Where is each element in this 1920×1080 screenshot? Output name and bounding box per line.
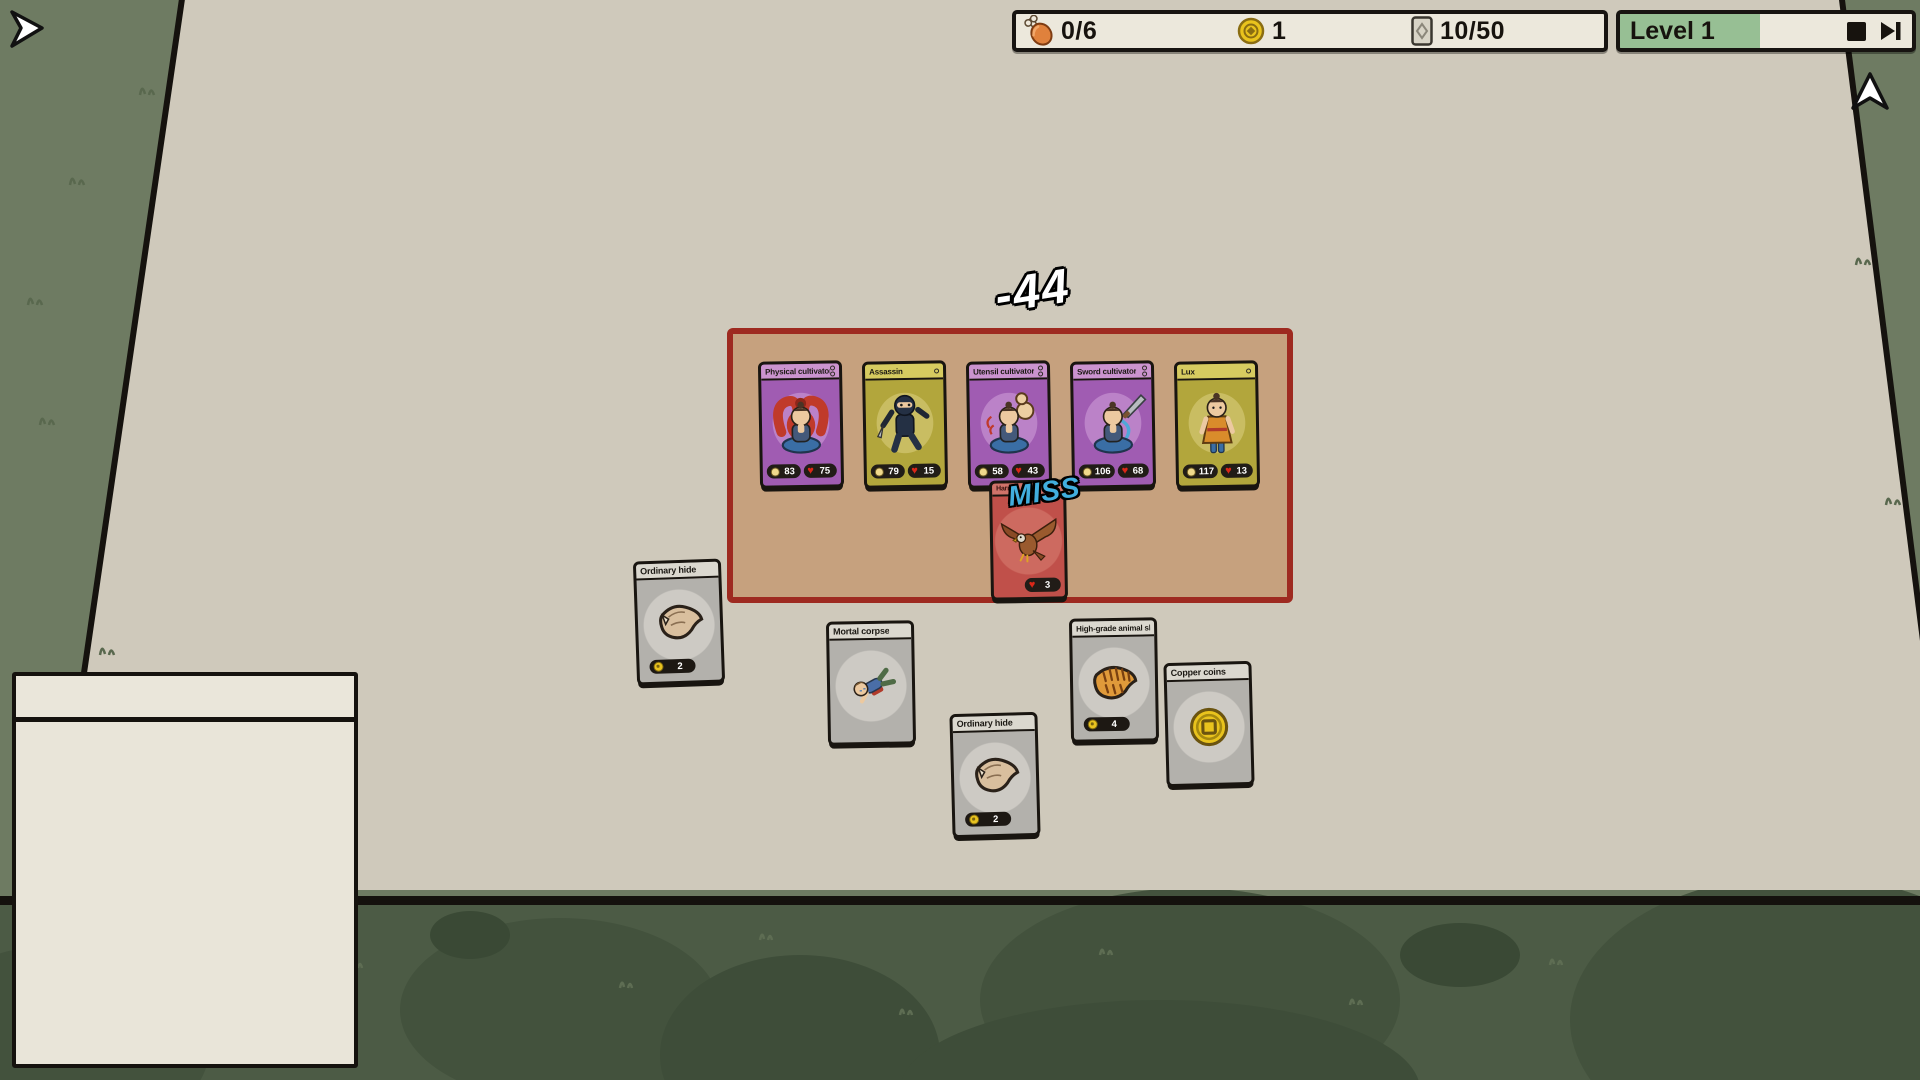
- rank-icon: [830, 365, 835, 376]
- rank-icon: [1246, 368, 1251, 373]
- attack-stat: 58: [975, 464, 1009, 479]
- loot-card-ordinary-hide-1[interactable]: Ordinary hide 2: [633, 559, 725, 686]
- loot-card-high-grade-animal-skin[interactable]: High-grade animal skin 4: [1069, 617, 1159, 743]
- attack-icon: [875, 467, 884, 476]
- health-stat: ♥15: [907, 463, 941, 478]
- health-icon: ♥: [1122, 466, 1129, 475]
- harrier-art: [997, 507, 1060, 574]
- coin-icon: [1237, 17, 1265, 45]
- card-name: Assassin: [869, 367, 903, 377]
- loot-card-copper-coins[interactable]: Copper coins: [1163, 661, 1254, 787]
- attack-stat: 79: [871, 464, 905, 479]
- game-stage: 0/6 1 10/50 Level 1: [0, 0, 1920, 1080]
- coin-value-icon: [969, 814, 979, 824]
- health-icon: ♥: [911, 466, 918, 475]
- unit-card-sword-cultivator[interactable]: Sword cultivator 106 ♥68: [1070, 360, 1156, 488]
- card-count: 10/50: [1440, 17, 1505, 46]
- hide-art: [645, 591, 713, 659]
- unit-card-lux[interactable]: Lux 117 ♥13: [1174, 360, 1260, 488]
- hide-art: [961, 744, 1029, 812]
- card-name: Physical cultivator: [765, 366, 830, 376]
- attack-icon: [1083, 467, 1092, 476]
- level-progress: Level 1: [1620, 14, 1760, 48]
- unit-card-utensil-cultivator[interactable]: Utensil cultivator 58 ♥43: [966, 360, 1052, 488]
- attack-stat: 106: [1079, 464, 1115, 479]
- info-panel-header: [16, 676, 354, 722]
- health-icon: ♥: [1015, 466, 1022, 475]
- health-stat: ♥13: [1221, 463, 1253, 478]
- level-label: Level 1: [1620, 17, 1715, 46]
- health-icon: ♥: [807, 466, 814, 475]
- card-stack-icon: [1411, 16, 1433, 46]
- card-name: Ordinary hide: [957, 718, 1013, 729]
- loot-card-mortal-corpse[interactable]: Mortal corpse: [826, 620, 916, 746]
- health-stat: ♥43: [1011, 463, 1045, 478]
- physical-cultivator-art: [765, 385, 836, 460]
- tiger-skin-art: [1080, 649, 1147, 716]
- rank-icon: [1142, 365, 1147, 376]
- info-panel: [12, 672, 358, 1068]
- card-counter: 10/50: [1411, 14, 1505, 48]
- sell-value-badge: 2: [649, 658, 695, 674]
- card-name: Sword cultivator: [1077, 366, 1137, 376]
- corpse-art: [837, 652, 904, 719]
- utensil-cultivator-art: [973, 385, 1044, 460]
- unit-card-physical-cultivator[interactable]: Physical cultivator 83 ♥75: [758, 360, 844, 488]
- card-name: Copper coins: [1171, 667, 1226, 678]
- card-name: Lux: [1181, 367, 1195, 376]
- attack-icon: [771, 467, 780, 476]
- health-stat: ♥75: [803, 463, 837, 478]
- expand-sidebar-icon[interactable]: [6, 6, 50, 52]
- sword-cultivator-art: [1077, 385, 1148, 460]
- copper-coin-art: [1175, 693, 1243, 761]
- health-stat: ♥68: [1118, 463, 1149, 478]
- attack-icon: [979, 467, 988, 476]
- sell-value-badge: 2: [965, 812, 1011, 827]
- assassin-art: [869, 385, 940, 460]
- stop-button[interactable]: [1847, 22, 1866, 41]
- card-name: Harrier: [996, 485, 1018, 492]
- rank-icon: [934, 368, 939, 373]
- attack-stat: 83: [767, 464, 801, 479]
- card-name: Mortal corpse: [833, 626, 890, 637]
- card-name: Ordinary hide: [640, 564, 696, 576]
- coin-count: 1: [1272, 17, 1286, 46]
- attack-icon: [1187, 467, 1196, 476]
- level-panel: Level 1: [1616, 10, 1916, 52]
- food-counter: 0/6: [1024, 14, 1097, 48]
- health-icon: ♥: [1225, 466, 1232, 475]
- card-name: Utensil cultivator: [973, 366, 1034, 376]
- card-name: High-grade animal skin: [1076, 623, 1150, 633]
- resource-bar: 0/6 1 10/50: [1012, 10, 1608, 52]
- health-icon: ♥: [1029, 580, 1036, 589]
- loot-card-ordinary-hide-2[interactable]: Ordinary hide 2: [949, 712, 1040, 838]
- coin-value-icon: [1088, 719, 1098, 729]
- lux-art: [1181, 385, 1252, 460]
- unit-card-assassin[interactable]: Assassin 79 ♥15: [862, 360, 948, 488]
- sell-value-badge: 4: [1084, 717, 1130, 732]
- enemy-card-harrier[interactable]: Harrier ♥3: [989, 479, 1068, 600]
- attack-stat: 117: [1183, 464, 1219, 479]
- drumstick-icon: [1024, 15, 1054, 47]
- health-stat: ♥3: [1025, 577, 1061, 592]
- scroll-up-icon[interactable]: [1846, 68, 1894, 118]
- food-count: 0/6: [1061, 17, 1097, 46]
- rank-icon: [1038, 365, 1043, 376]
- skip-level-button[interactable]: [1880, 21, 1902, 41]
- coin-counter: 1: [1237, 14, 1286, 48]
- coin-value-icon: [653, 662, 663, 672]
